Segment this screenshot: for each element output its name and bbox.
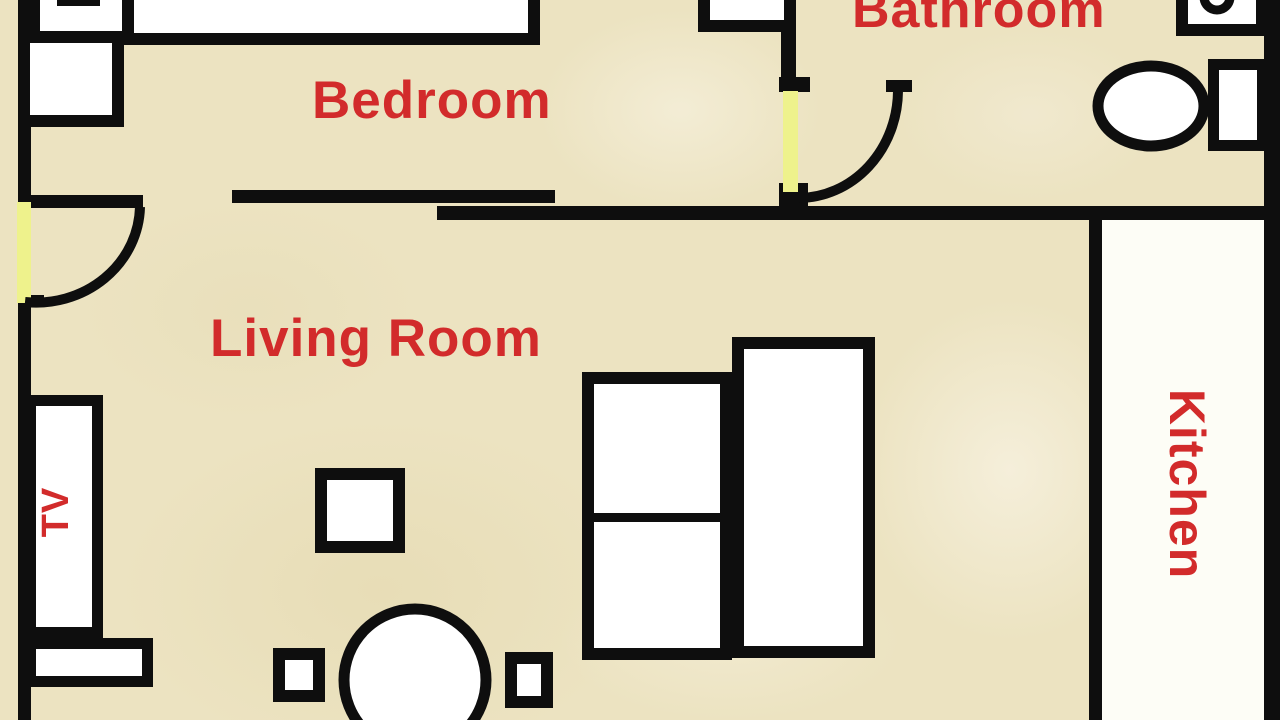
tv-stand (25, 638, 153, 687)
wall-kitchen-left (1089, 206, 1102, 720)
entry-door-swing-arc (25, 207, 140, 303)
wall-hallway-main (437, 206, 1280, 220)
wall-bathroom-door-tick (886, 80, 912, 92)
wall-entry-corner (18, 195, 143, 208)
entry-door-leaf (17, 202, 31, 303)
coffee-table-square (315, 468, 405, 553)
nightstand-side (18, 31, 124, 127)
sofa-cushion-divider (594, 513, 720, 522)
bathroom-closet (698, 0, 796, 32)
wall-bathroom-door-hinge (779, 77, 810, 92)
sofa-left-section (582, 372, 732, 660)
floor-texture (900, 30, 1160, 200)
round-table (344, 609, 486, 720)
floor-texture (120, 420, 640, 720)
floor-texture (540, 10, 820, 210)
toilet-tank (1208, 59, 1268, 151)
bed (122, 0, 540, 45)
lamp-on-nightstand (57, 0, 100, 6)
tv-label: TV (37, 487, 75, 538)
toilet-bowl (1098, 66, 1204, 146)
floor-plan: Bedroom Bathroom Living Room Kitchen TV (0, 0, 1280, 720)
kitchen-label: Kitchen (1162, 389, 1212, 579)
sofa-right-section (732, 337, 875, 658)
bathroom-label: Bathroom (852, 0, 1106, 36)
stool-right (505, 652, 553, 708)
living-room-label: Living Room (210, 312, 542, 365)
bedroom-label: Bedroom (312, 74, 552, 127)
stool-left (273, 648, 325, 702)
bathroom-sink (1176, 0, 1268, 36)
bathroom-door-leaf (783, 91, 798, 192)
bathroom-door-swing-arc (799, 91, 898, 198)
wall-bedroom-living (232, 190, 555, 203)
